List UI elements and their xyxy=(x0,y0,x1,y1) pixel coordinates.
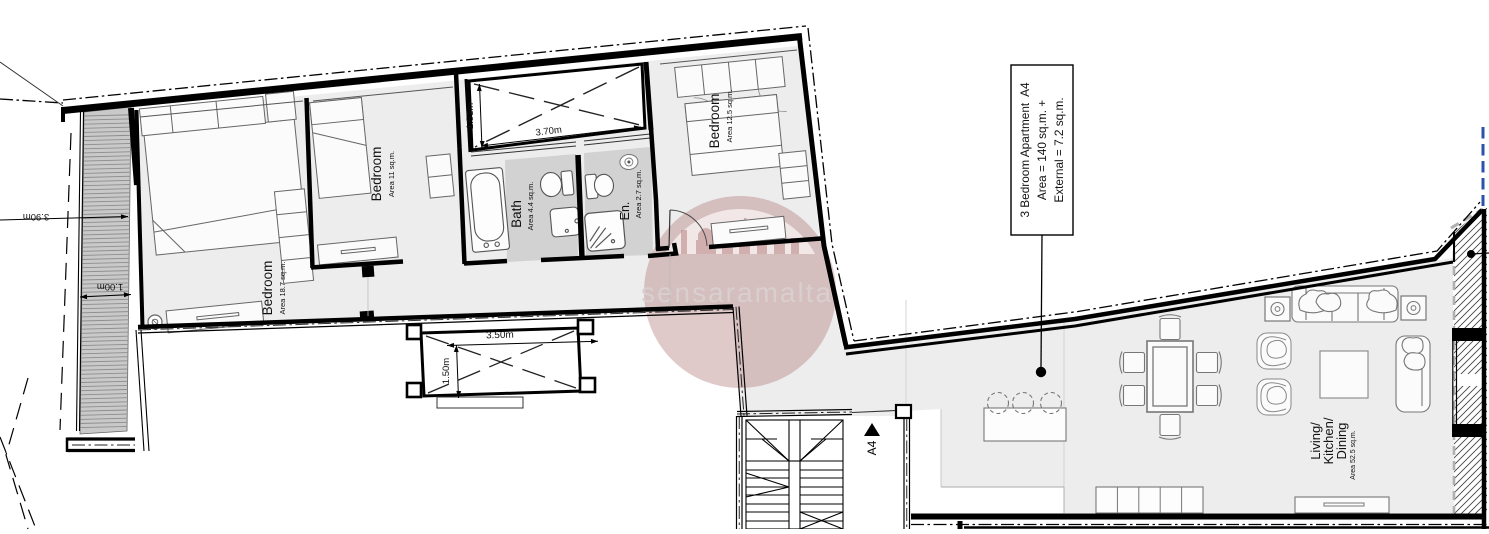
svg-text:Bath: Bath xyxy=(509,200,524,228)
svg-text:Bedroom: Bedroom xyxy=(369,147,384,202)
svg-text:Area 2.7 sq.m.: Area 2.7 sq.m. xyxy=(634,170,643,219)
svg-text:Area 4.4 sq.m.: Area 4.4 sq.m. xyxy=(526,182,535,231)
svg-text:Area = 140 sq.m. +: Area = 140 sq.m. + xyxy=(1035,100,1049,200)
svg-text:3.50m: 3.50m xyxy=(486,330,514,342)
svg-text:1.50m: 1.50m xyxy=(441,358,452,384)
svg-text:En.: En. xyxy=(618,202,632,221)
svg-text:A4: A4 xyxy=(865,440,879,455)
svg-text:1.00m: 1.00m xyxy=(97,281,123,292)
svg-text:Area 11 sq.m.: Area 11 sq.m. xyxy=(387,151,396,197)
svg-text:Bedroom: Bedroom xyxy=(260,261,275,316)
svg-text:Dining: Dining xyxy=(1334,423,1349,460)
svg-text:Bedroom: Bedroom xyxy=(707,94,722,149)
svg-text:Area 12.5 sq.m.: Area 12.5 sq.m. xyxy=(725,90,734,143)
svg-text:Area 18.7 sq.m.: Area 18.7 sq.m. xyxy=(278,262,287,315)
svg-text:1.51m: 1.51m xyxy=(465,103,476,129)
svg-text:Area 52.5 sq.m.: Area 52.5 sq.m. xyxy=(1350,430,1357,479)
svg-text:3 Bedroom Apartment A4: 3 Bedroom Apartment A4 xyxy=(1018,82,1032,218)
svg-text:3.90m: 3.90m xyxy=(23,211,49,222)
svg-text:External = 7.2 sq.m.: External = 7.2 sq.m. xyxy=(1052,97,1066,202)
